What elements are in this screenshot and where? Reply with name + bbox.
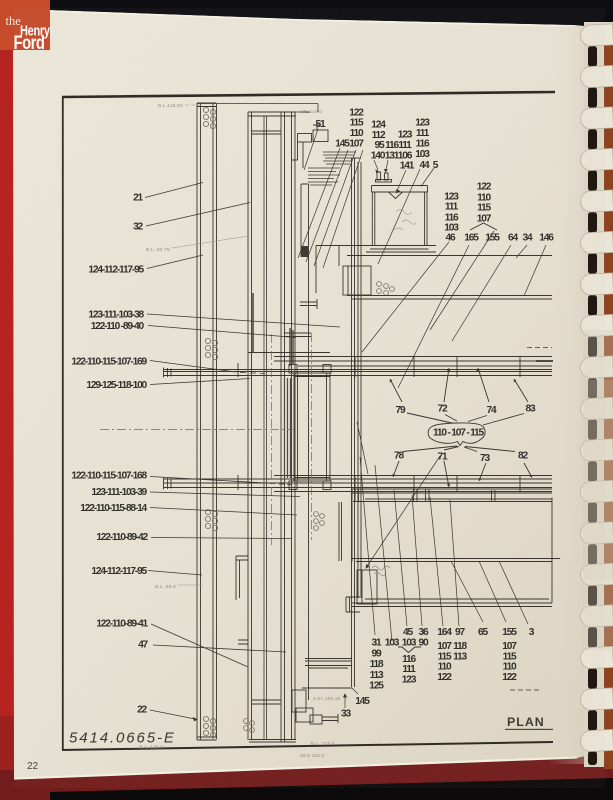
svg-text:22: 22	[27, 761, 39, 772]
